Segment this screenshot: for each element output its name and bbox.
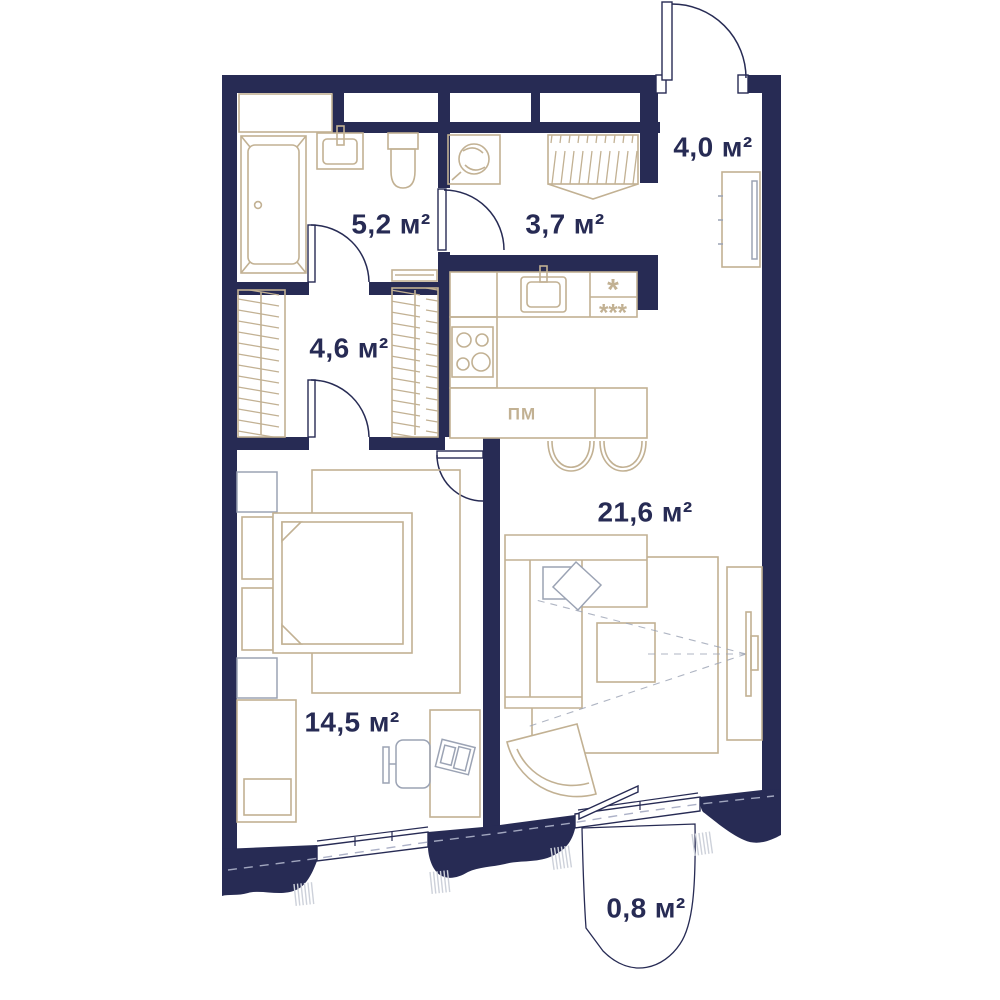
dishwasher-label: ПМ — [508, 405, 536, 424]
living-room — [505, 535, 762, 797]
hatch-marks — [551, 846, 571, 870]
towel-bench — [392, 270, 437, 281]
shaft-pier — [531, 93, 540, 122]
wall-kitchen-stub — [637, 272, 658, 310]
bathtub — [241, 136, 306, 273]
wall-corridor-hall — [640, 93, 658, 183]
entrance-door-leaf — [662, 2, 672, 80]
corridor-fixtures — [448, 135, 638, 199]
coffee-table — [597, 623, 655, 682]
dresser — [237, 700, 296, 822]
bathroom-sink — [317, 126, 363, 169]
wall-bedroom-living — [483, 437, 500, 832]
wall-top-right — [748, 75, 781, 93]
shaft-bottom-wall — [332, 122, 660, 133]
room-label-living: 21,6 м² — [597, 497, 692, 528]
stove — [452, 327, 493, 377]
freezer-stars-icon: *** — [599, 300, 628, 327]
entrance-door — [656, 2, 748, 93]
nightstand — [242, 588, 273, 650]
sliding-door — [752, 181, 757, 259]
wardrobe-door — [308, 380, 369, 437]
room-label-hall: 4,0 м² — [673, 132, 752, 163]
room-label-bathroom: 5,2 м² — [351, 209, 430, 240]
wall-left — [222, 93, 237, 855]
nightstand — [242, 517, 273, 579]
bedroom-unit-bottom — [237, 658, 277, 698]
bedroom-unit-top — [237, 472, 277, 512]
wall-kitchen — [448, 255, 658, 272]
bedroom-furniture — [237, 470, 480, 822]
wall-top-left — [222, 75, 658, 93]
bar-stools — [548, 441, 646, 471]
hall-cabinet — [718, 172, 760, 267]
kitchen-sink — [521, 266, 566, 312]
shaft-niche — [239, 94, 332, 132]
floor-plan: * *** ПМ — [0, 0, 1000, 1000]
room-label-balcony: 0,8 м² — [606, 893, 685, 924]
corridor-door — [438, 189, 504, 250]
room-label-corridor: 3,7 м² — [525, 209, 604, 240]
bed — [273, 513, 412, 653]
laptop — [435, 739, 475, 774]
room-label-wardrobe: 4,6 м² — [309, 333, 388, 364]
hall-closet-rail — [548, 135, 638, 199]
room-label-bedroom: 14,5 м² — [304, 707, 399, 738]
wall-wardrobe-bottom-right — [369, 437, 445, 450]
entrance-door-swing — [672, 4, 746, 78]
closet-shelf — [548, 184, 638, 199]
wall-facade-middle — [428, 815, 575, 878]
hallway-furniture — [718, 172, 760, 267]
kitchen: * *** ПМ — [450, 266, 647, 471]
wall-wardrobe-bottom-left — [222, 437, 309, 450]
bathroom-fixtures — [241, 126, 437, 281]
floor-plan-drawing: * *** ПМ — [0, 0, 1000, 1000]
kitchen-island: ПМ — [450, 388, 647, 438]
wall-facade-left — [222, 845, 317, 896]
bedroom-window — [317, 827, 428, 861]
refrigerator: * *** — [590, 274, 637, 327]
desk-chair — [383, 740, 430, 788]
toilet — [388, 133, 418, 188]
wall-bath-corridor-lower — [438, 252, 450, 437]
wall-right — [762, 93, 781, 793]
washing-machine — [448, 135, 500, 184]
armchair — [507, 724, 596, 797]
